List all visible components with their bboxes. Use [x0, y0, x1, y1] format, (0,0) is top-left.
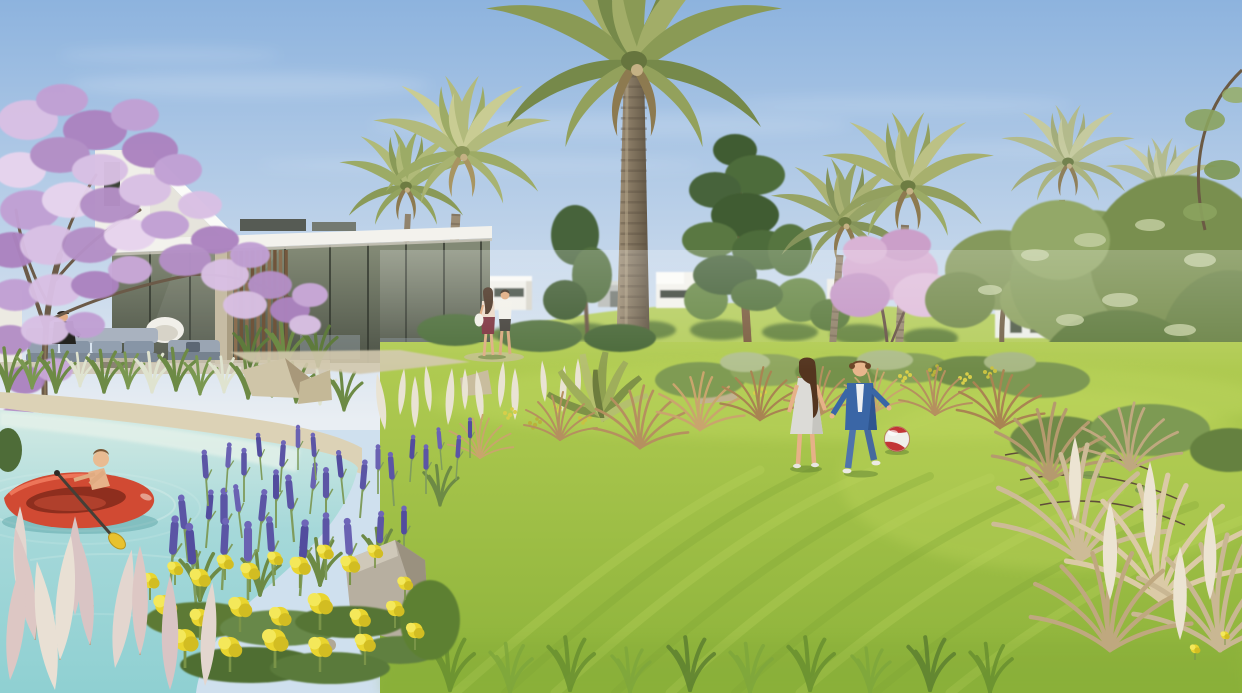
landscape-scene — [0, 0, 1242, 693]
play-ball — [885, 427, 910, 456]
distance-haze — [380, 250, 1242, 370]
rendered-landscape-image: Resort community garden rendering — [0, 0, 1242, 693]
